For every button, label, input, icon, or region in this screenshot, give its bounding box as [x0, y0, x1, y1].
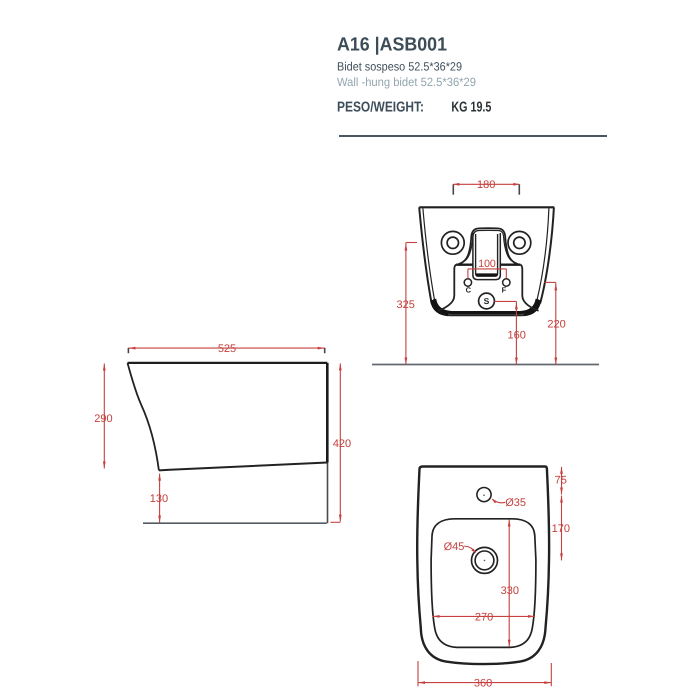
- svg-text:75: 75: [555, 475, 567, 487]
- svg-text:C: C: [466, 286, 472, 295]
- svg-text:330: 330: [501, 585, 519, 597]
- svg-text:PESO/WEIGHT:: PESO/WEIGHT:: [337, 99, 424, 115]
- svg-text:S: S: [484, 296, 490, 306]
- svg-text:325: 325: [397, 299, 415, 311]
- svg-text:420: 420: [333, 438, 351, 450]
- svg-text:130: 130: [150, 493, 168, 505]
- svg-text:360: 360: [474, 678, 492, 690]
- svg-text:A16 |ASB001: A16 |ASB001: [337, 35, 447, 56]
- svg-text:F: F: [502, 286, 507, 295]
- svg-text:Wall -hung bidet 52.5*36*29: Wall -hung bidet 52.5*36*29: [337, 75, 476, 89]
- svg-text:220: 220: [547, 319, 565, 331]
- svg-text:160: 160: [508, 330, 526, 342]
- svg-text:Ø35: Ø35: [505, 497, 526, 509]
- svg-text:100: 100: [478, 258, 496, 270]
- svg-text:525: 525: [218, 343, 236, 355]
- svg-text:KG 19.5: KG 19.5: [451, 99, 491, 115]
- svg-text:180: 180: [477, 179, 495, 191]
- svg-text:290: 290: [94, 413, 112, 425]
- svg-text:170: 170: [552, 523, 570, 535]
- svg-text:270: 270: [475, 611, 493, 623]
- svg-text:Bidet sospeso 52.5*36*29: Bidet sospeso 52.5*36*29: [337, 60, 462, 74]
- svg-text:Ø45: Ø45: [444, 541, 465, 553]
